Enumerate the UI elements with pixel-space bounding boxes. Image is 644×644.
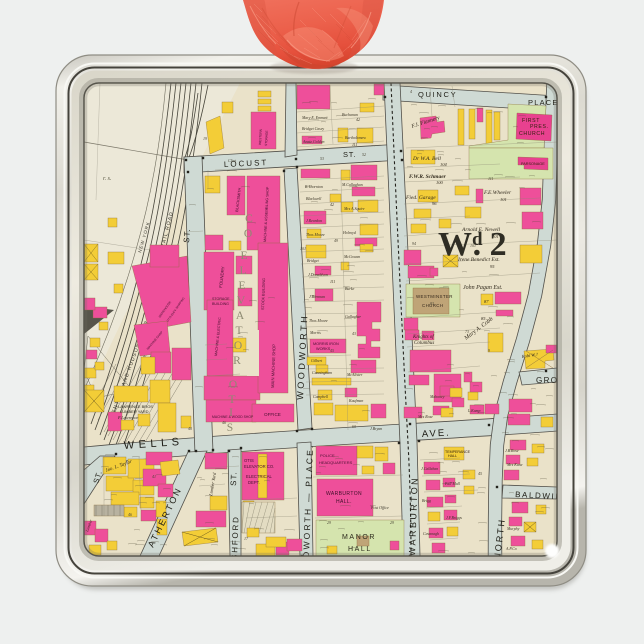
svg-text:Cunningham: Cunningham (312, 371, 332, 375)
svg-text:S: S (227, 422, 233, 434)
svg-text:E: E (240, 250, 247, 262)
svg-text:HALL.: HALL. (336, 499, 352, 505)
svg-text:R: R (233, 355, 241, 367)
svg-text:J.Callahan: J.Callahan (421, 467, 438, 471)
svg-text:J.Donaldson: J.Donaldson (308, 273, 328, 277)
svg-text:MORRIS IRON: MORRIS IRON (313, 342, 339, 346)
svg-text:Arnold E. Newell: Arnold E. Newell (461, 227, 501, 233)
svg-text:ST.: ST. (182, 228, 192, 243)
svg-text:ST.: ST. (229, 471, 239, 486)
svg-text:PARSONAGE: PARSONAGE (521, 162, 545, 166)
svg-text:M.Callaghan: M.Callaghan (341, 183, 363, 187)
svg-text:Bridget: Bridget (307, 259, 320, 263)
svg-text:Campbell: Campbell (313, 395, 328, 399)
svg-text:49: 49 (334, 238, 338, 243)
svg-text:T: T (235, 325, 242, 337)
svg-text:r. s.: r. s. (103, 176, 112, 182)
svg-text:MANOR: MANOR (342, 534, 376, 541)
svg-text:V: V (237, 295, 246, 307)
svg-text:111: 111 (330, 280, 335, 284)
svg-text:Dr W.A. Bell: Dr W.A. Bell (412, 156, 441, 162)
svg-text:53: 53 (320, 156, 324, 161)
svg-text:Buchanan: Buchanan (342, 113, 358, 117)
svg-text:F.E.Wheeler: F.E.Wheeler (483, 190, 512, 196)
svg-text:Mrs Rose: Mrs Rose (417, 415, 433, 419)
svg-text:Gallagher: Gallagher (345, 315, 361, 319)
svg-text:POLICE: POLICE (320, 453, 335, 458)
svg-text:111: 111 (488, 176, 493, 181)
svg-text:WESTMINSTER: WESTMINSTER (416, 294, 453, 299)
svg-text:J.Bryan: J.Bryan (370, 427, 382, 431)
svg-text:C: C (245, 213, 253, 225)
svg-text:95: 95 (490, 264, 495, 269)
svg-text:ELECTRICAL: ELECTRICAL (246, 474, 273, 479)
svg-text:94: 94 (412, 241, 416, 246)
svg-text:Thos Moore: Thos Moore (309, 319, 328, 323)
svg-text:A.P.Co: A.P.Co (505, 547, 517, 551)
svg-text:Annie Golden: Annie Golden (302, 140, 325, 144)
svg-text:Blackwell: Blackwell (306, 197, 321, 201)
svg-text:STORAGE: STORAGE (264, 130, 269, 146)
svg-text:E: E (238, 280, 245, 292)
svg-text:QUINCY: QUINCY (418, 90, 457, 99)
svg-text:101: 101 (500, 197, 507, 202)
svg-text:HALL: HALL (448, 454, 457, 458)
svg-text:Cavanagh: Cavanagh (423, 532, 439, 536)
svg-text:Kaufman: Kaufman (348, 399, 363, 403)
svg-text:19: 19 (203, 136, 207, 141)
svg-text:111: 111 (352, 143, 357, 147)
svg-text:ST.: ST. (343, 150, 356, 159)
svg-text:CHURCH: CHURCH (519, 131, 545, 137)
svg-text:MACHINE & WOOD SHOP: MACHINE & WOOD SHOP (212, 415, 254, 419)
svg-text:Pall Mall: Pall Mall (444, 482, 460, 486)
svg-text:101: 101 (300, 246, 306, 251)
svg-text:McGowan: McGowan (343, 255, 360, 259)
svg-text:L: L (239, 265, 246, 277)
svg-text:96: 96 (432, 201, 437, 206)
svg-text:J.Brennan: J.Brennan (309, 295, 325, 299)
svg-text:PRES.: PRES. (530, 124, 549, 130)
svg-text:101: 101 (492, 234, 499, 239)
svg-text:Mahoney: Mahoney (429, 395, 445, 399)
svg-text:AVE.: AVE. (422, 427, 451, 440)
svg-text:41: 41 (152, 474, 156, 479)
svg-text:T: T (228, 394, 235, 406)
svg-text:Bartholomew: Bartholomew (345, 136, 366, 140)
svg-text:29: 29 (327, 520, 331, 525)
svg-text:Bridget Casey: Bridget Casey (302, 127, 324, 131)
svg-text:42: 42 (330, 203, 334, 207)
svg-text:Gilbert: Gilbert (311, 359, 323, 363)
svg-text:42: 42 (356, 118, 360, 122)
svg-text:A: A (236, 310, 245, 322)
svg-text:46: 46 (222, 420, 226, 425)
svg-text:WARBURTON: WARBURTON (326, 491, 362, 497)
svg-text:Mrs A.Squire: Mrs A.Squire (343, 207, 365, 211)
svg-text:100: 100 (436, 180, 444, 185)
svg-text:46: 46 (128, 512, 132, 517)
svg-text:Mrs Kane: Mrs Kane (506, 463, 523, 467)
svg-text:J.F.Briggs: J.F.Briggs (446, 516, 462, 520)
svg-text:ELEVATOR CO.: ELEVATOR CO. (244, 464, 274, 469)
svg-text:Morris: Morris (309, 331, 321, 335)
svg-text:Mary E. Emmett: Mary E. Emmett (301, 116, 329, 120)
svg-text:101: 101 (470, 243, 476, 248)
svg-text:WORKS: WORKS (316, 347, 331, 351)
svg-text:Columbus: Columbus (414, 341, 434, 346)
svg-text:29: 29 (390, 520, 394, 525)
svg-text:73: 73 (465, 329, 469, 334)
svg-text:Holroyd: Holroyd (342, 231, 356, 235)
svg-text:52: 52 (362, 152, 366, 157)
svg-text:OTIS: OTIS (244, 458, 254, 463)
svg-text:McAlister: McAlister (346, 373, 363, 377)
svg-text:45: 45 (330, 348, 334, 353)
svg-text:Clint: Clint (228, 158, 237, 163)
svg-text:83: 83 (430, 301, 434, 306)
svg-text:60: 60 (352, 424, 356, 429)
svg-text:Burke: Burke (345, 287, 355, 291)
svg-text:87: 87 (484, 299, 489, 304)
svg-text:9: 9 (488, 348, 490, 353)
svg-text:O: O (229, 379, 237, 391)
svg-text:45: 45 (478, 471, 482, 476)
svg-text:F.Lawrence: F.Lawrence (117, 415, 138, 420)
svg-text:HALL: HALL (348, 546, 372, 553)
svg-text:OFFICE: OFFICE (264, 412, 281, 417)
svg-text:Thos Moore: Thos Moore (306, 233, 325, 237)
svg-text:Post Office: Post Office (370, 505, 389, 510)
svg-text:Murphy: Murphy (506, 527, 520, 531)
svg-text:43: 43 (352, 331, 356, 336)
svg-text:O: O (244, 228, 252, 240)
svg-text:Brigg: Brigg (422, 499, 431, 503)
svg-text:DEPT.: DEPT. (248, 480, 260, 485)
svg-text:John Pagan Est.: John Pagan Est. (463, 285, 503, 291)
svg-text:40: 40 (188, 426, 192, 431)
svg-text:HEADQUARTERS: HEADQUARTERS (319, 460, 353, 465)
svg-text:BUILDING: BUILDING (212, 302, 229, 306)
svg-text:R.Thornton: R.Thornton (304, 185, 323, 189)
svg-text:L.Kamp: L.Kamp (467, 409, 480, 413)
svg-text:LUMBER YARD: LUMBER YARD (120, 409, 149, 414)
svg-text:J.Reardon: J.Reardon (306, 219, 322, 223)
svg-text:O: O (234, 340, 242, 352)
svg-text:104: 104 (440, 162, 448, 167)
svg-text:Irene Benedict Est.: Irene Benedict Est. (457, 257, 500, 263)
svg-text:Knights of: Knights of (412, 335, 434, 340)
svg-text:4: 4 (410, 89, 412, 94)
svg-text:STORAGE: STORAGE (212, 297, 230, 301)
svg-text:J.B.Rose: J.B.Rose (505, 449, 519, 453)
